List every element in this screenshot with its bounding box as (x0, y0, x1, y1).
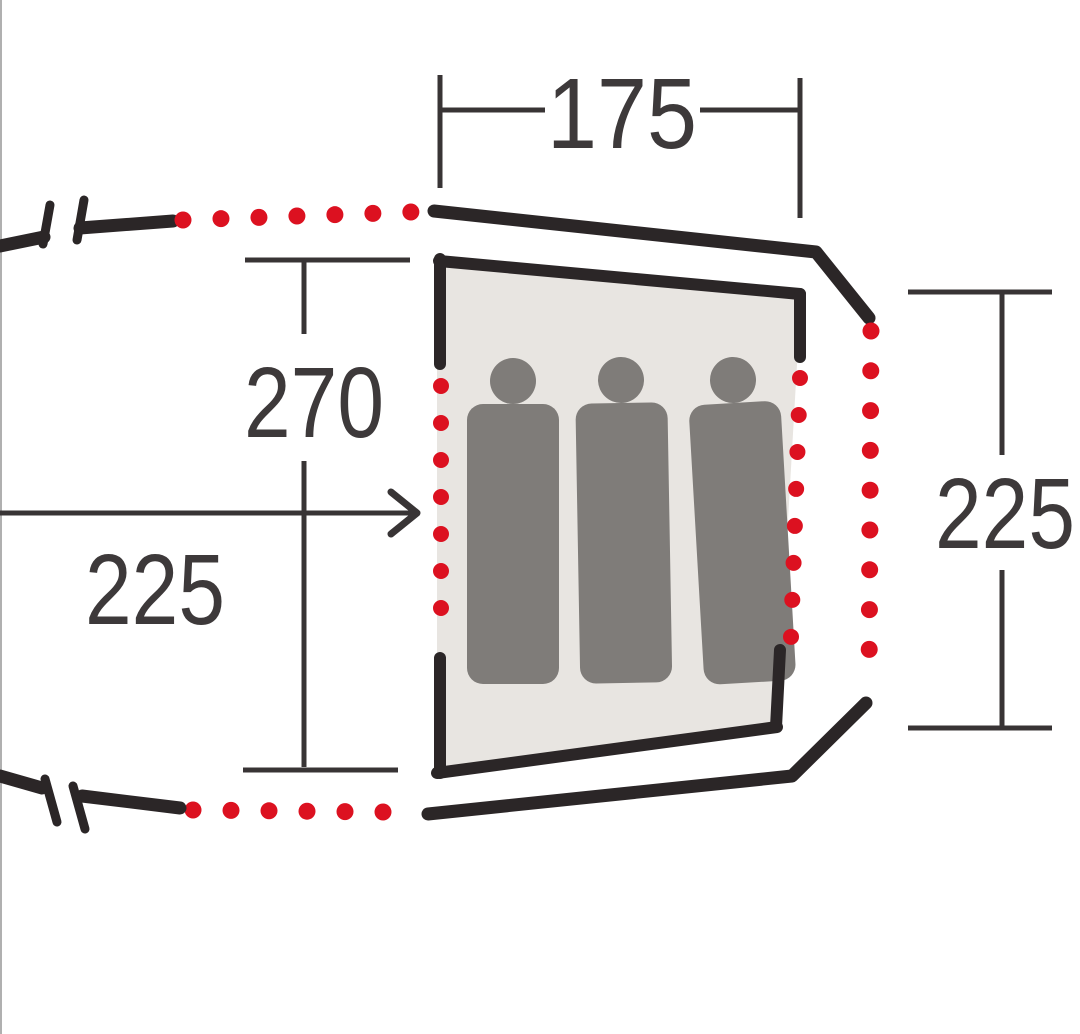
sleeping-person-icon (575, 356, 673, 684)
dimension-porch-length: 225 (0, 492, 417, 646)
dim-cabin-depth-label: 270 (244, 347, 384, 459)
dimension-top-width: 175 (440, 58, 800, 218)
outer-wall-bottom-left-a (0, 776, 42, 788)
sleeping-person-icon (467, 358, 559, 684)
dim-cabin-width-label: 225 (935, 458, 1075, 570)
outer-zip-bottom (193, 810, 383, 812)
outer-zip-top (183, 212, 411, 220)
outer-wall-bottom-left-b (82, 796, 180, 808)
dim-porch-length-label: 225 (85, 534, 225, 646)
break-mark (45, 779, 57, 822)
tent-floorplan-diagram: 175 270 225 225 (0, 0, 1080, 1034)
dim-top-width-label: 175 (547, 58, 697, 170)
outer-zip-right (869, 331, 871, 689)
inner-cabin (437, 259, 801, 774)
dimension-cabin-width: 225 (908, 292, 1075, 728)
cabin-wall-right-lower (776, 650, 780, 727)
outer-wall-top-left-a (0, 237, 44, 246)
outer-wall-top-left-b (80, 221, 173, 228)
cabin-door-zip-right (791, 378, 800, 637)
diagram-canvas: 175 270 225 225 (0, 0, 1080, 1034)
